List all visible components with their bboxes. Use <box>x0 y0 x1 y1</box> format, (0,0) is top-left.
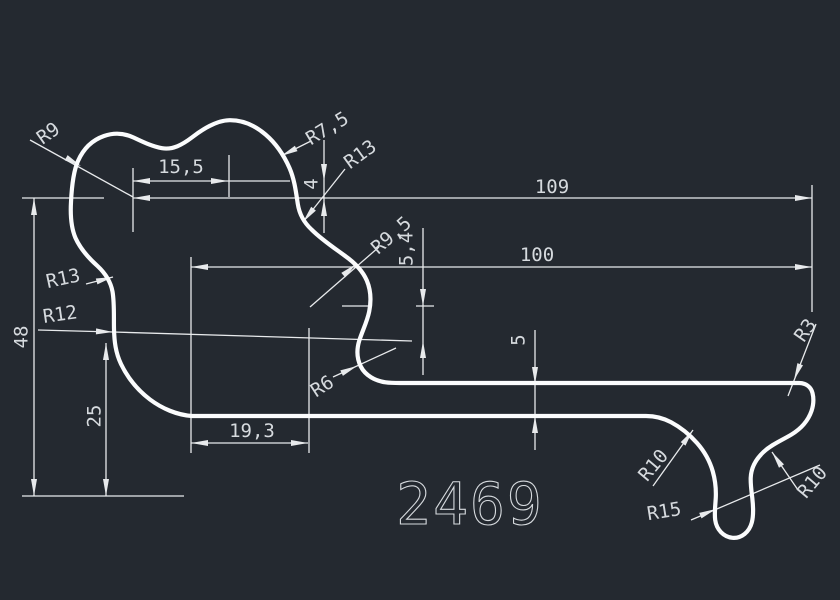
arrow-15-5-right <box>211 178 228 184</box>
drawing-canvas[interactable]: 48 25 15,5 109 100 4 5,4 5 19,3 R9 R13 R… <box>0 0 840 600</box>
arrow-109-left <box>133 195 150 201</box>
arrow-r3 <box>794 363 803 380</box>
dim-100-label: 100 <box>520 244 554 266</box>
arrow-100-right <box>795 264 812 270</box>
arrowheads <box>31 146 812 519</box>
arrow-48-top <box>31 198 37 215</box>
radius-r10-left-label: R10 <box>634 445 673 485</box>
dim-48-label: 48 <box>11 326 33 349</box>
radius-r3-label: R3 <box>790 315 821 346</box>
dim-15-5-label: 15,5 <box>158 156 204 178</box>
radius-r7-5-label: R7,5 <box>302 107 353 149</box>
arrow-5-4-bottom <box>420 341 426 358</box>
radius-r15-label: R15 <box>645 498 682 525</box>
arrow-15-5-left <box>133 178 150 184</box>
radius-r6-label: R6 <box>307 371 338 402</box>
arrow-r10-right <box>772 452 784 468</box>
arrow-r6 <box>340 366 357 376</box>
arrow-100-left <box>191 264 208 270</box>
arrow-48-bottom <box>31 479 37 496</box>
dim-19-3-label: 19,3 <box>229 420 275 442</box>
arrow-5-bottom <box>532 416 538 433</box>
dim-25-label: 25 <box>84 405 106 428</box>
arrow-4-bottom <box>321 199 327 216</box>
dimension-lines <box>22 140 812 496</box>
arrow-109-right <box>795 195 812 201</box>
cad-viewport: 48 25 15,5 109 100 4 5,4 5 19,3 R9 R13 R… <box>0 0 840 600</box>
radius-r13-top-label: R13 <box>340 136 381 174</box>
arrow-19-3-right <box>291 440 308 446</box>
arrow-25-bottom <box>103 479 109 496</box>
dim-4-label: 4 <box>301 178 323 189</box>
arrow-25-top <box>103 343 109 360</box>
dim-5-label: 5 <box>508 334 530 345</box>
arrow-19-3-left <box>191 440 208 446</box>
dim-109-label: 109 <box>535 176 569 198</box>
radius-r10-right-label: R10 <box>793 462 832 502</box>
leader-r12-extension <box>113 332 412 341</box>
radius-r13-left-label: R13 <box>44 264 82 293</box>
arrow-5-4-top <box>420 289 426 306</box>
part-number: 2469 <box>396 470 544 538</box>
arrow-r9-5 <box>341 264 356 277</box>
radius-r12-label: R12 <box>42 301 79 328</box>
